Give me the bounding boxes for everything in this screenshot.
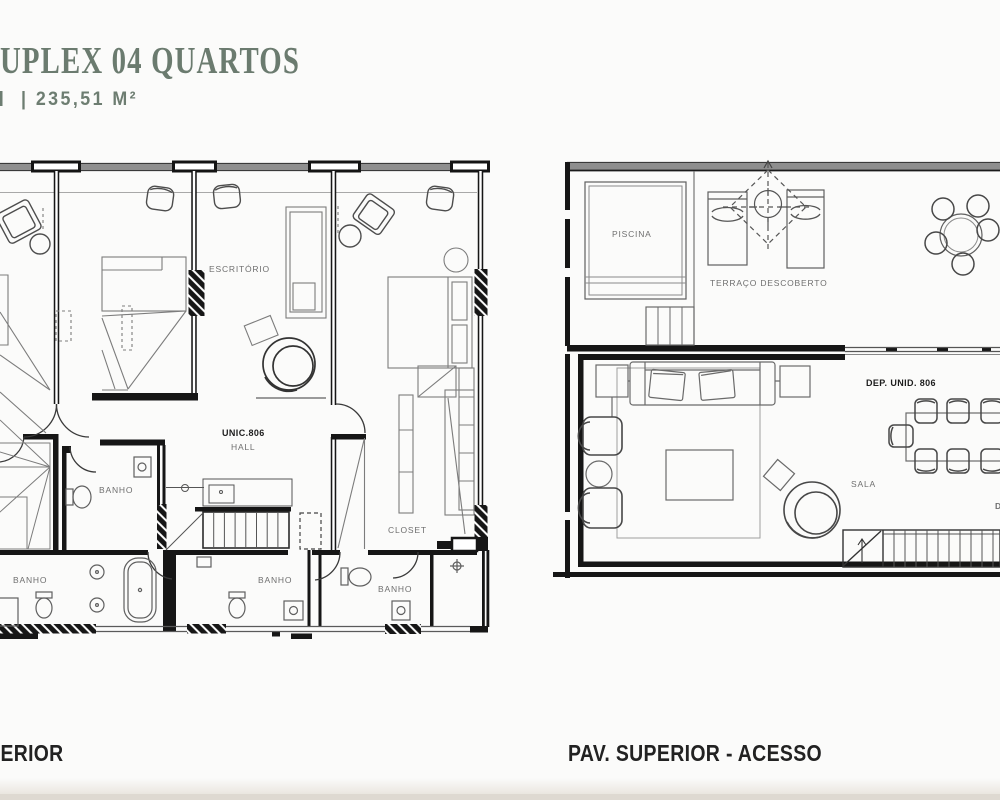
svg-text:BANHO: BANHO bbox=[378, 584, 412, 594]
svg-text:BANHO: BANHO bbox=[258, 575, 292, 585]
svg-text:SALA: SALA bbox=[851, 479, 876, 489]
svg-text:| 235,51 M²: | 235,51 M² bbox=[21, 89, 138, 110]
svg-text:ERIOR: ERIOR bbox=[1, 740, 64, 766]
svg-text:UNIC.806: UNIC.806 bbox=[222, 428, 265, 438]
svg-text:DUPLEX 04 QUARTOS: DUPLEX 04 QUARTOS bbox=[0, 40, 300, 82]
svg-text:CLOSET: CLOSET bbox=[388, 525, 427, 535]
svg-text:PISCINA: PISCINA bbox=[612, 229, 652, 239]
svg-text:PAV. SUPERIOR - ACESSO: PAV. SUPERIOR - ACESSO bbox=[568, 740, 822, 766]
svg-text:DE: DE bbox=[995, 501, 1000, 511]
svg-text:HALL: HALL bbox=[231, 442, 255, 452]
svg-text:TERRAÇO DESCOBERTO: TERRAÇO DESCOBERTO bbox=[710, 278, 828, 288]
svg-text:BANHO: BANHO bbox=[13, 575, 47, 585]
svg-text:DEP. UNID. 806: DEP. UNID. 806 bbox=[866, 378, 936, 388]
svg-text:ESCRITÓRIO: ESCRITÓRIO bbox=[209, 264, 270, 274]
svg-text:BANHO: BANHO bbox=[99, 485, 133, 495]
